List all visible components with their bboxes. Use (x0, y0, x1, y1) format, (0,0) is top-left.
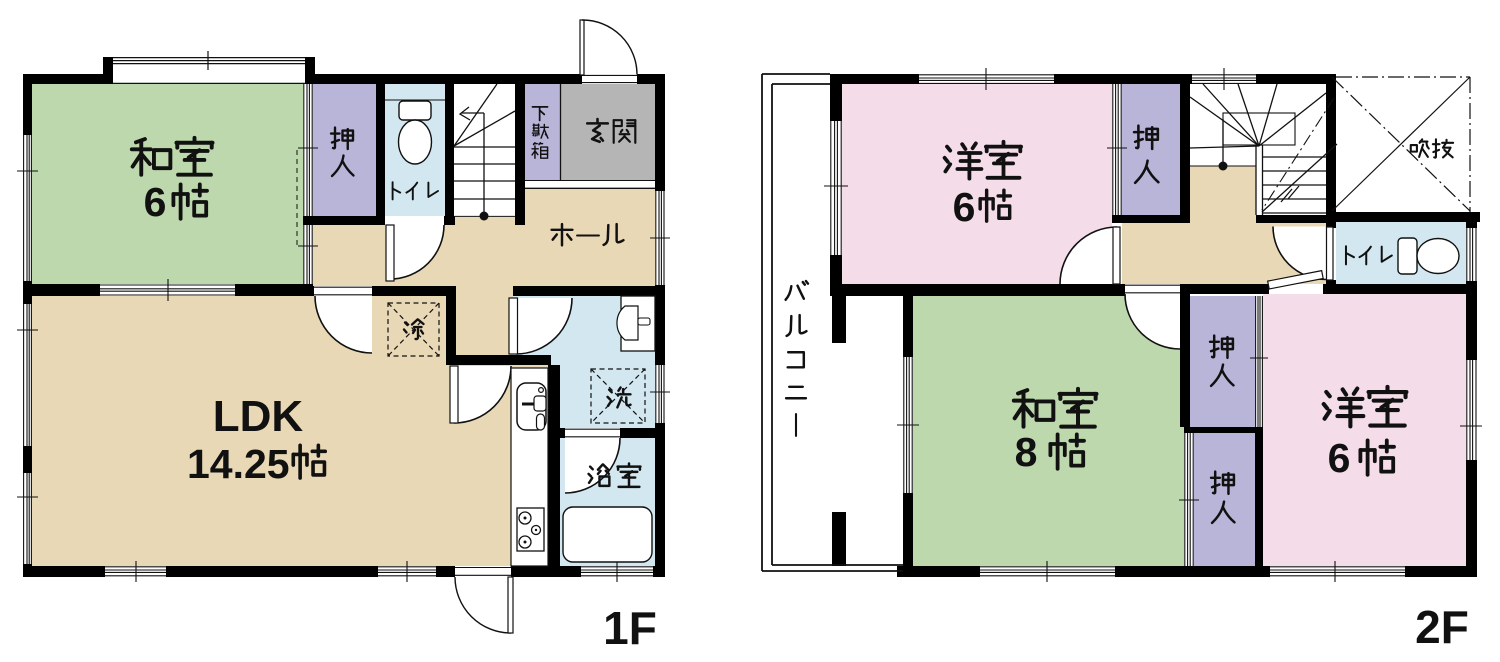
svg-text:8: 8 (1015, 429, 1038, 475)
svg-text:LDK: LDK (213, 392, 304, 441)
svg-text:6: 6 (1328, 435, 1351, 481)
svg-text:14.25: 14.25 (187, 441, 290, 487)
svg-text:1F: 1F (603, 602, 657, 654)
svg-text:6: 6 (953, 184, 976, 230)
svg-text:6: 6 (144, 179, 167, 225)
svg-text:2F: 2F (1415, 601, 1469, 653)
